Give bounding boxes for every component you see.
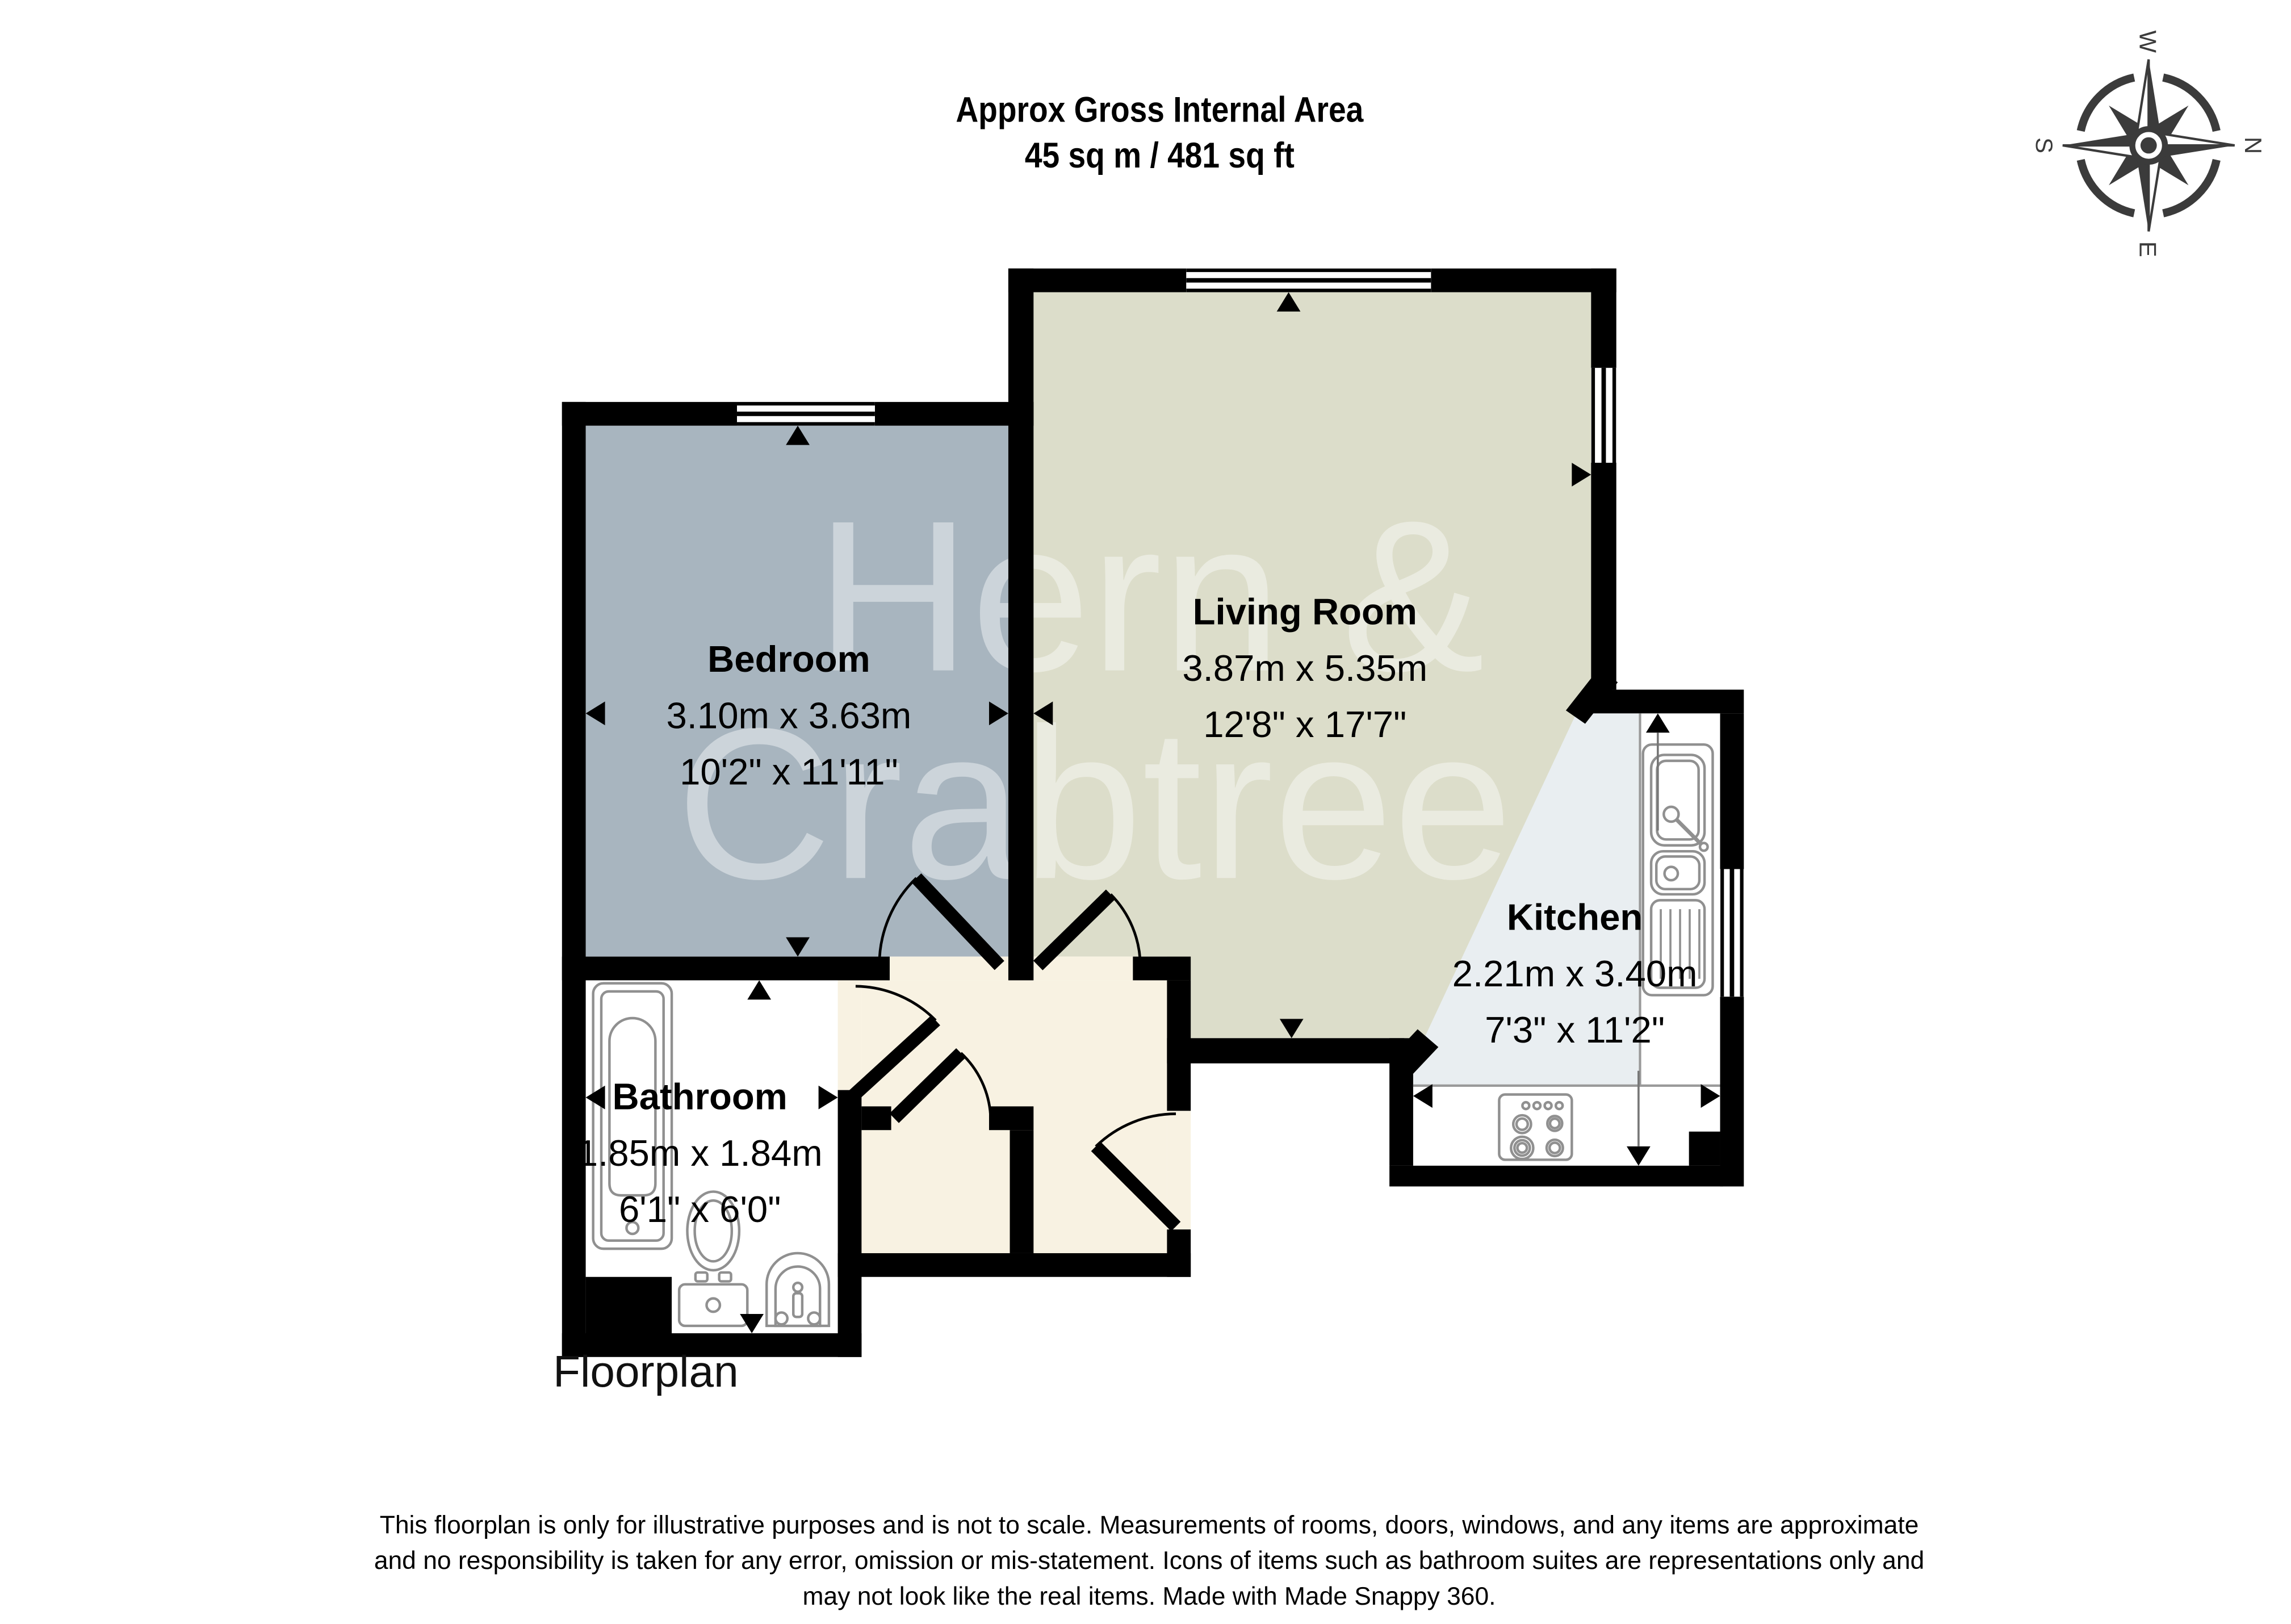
compass-s: S [2031, 137, 2058, 153]
kitchen-imperial: 7'3" x 11'2" [1485, 1009, 1665, 1050]
basin-icon [767, 1253, 829, 1326]
disclaimer-line1: This floorplan is only for illustrative … [380, 1512, 1919, 1539]
room-label-living: Living Room 3.87m x 5.35m 12'8" x 17'7" [1182, 591, 1427, 745]
compass-hub-dot [2141, 137, 2157, 154]
compass-w: W [2135, 31, 2162, 53]
bathroom-imperial: 6'1" x 6'0" [619, 1188, 781, 1230]
compass-icon: N E S W [2031, 31, 2267, 257]
bedroom-imperial: 10'2" x 11'11" [680, 751, 898, 793]
wall-outer-left [562, 402, 586, 1357]
living-name: Living Room [1193, 591, 1417, 633]
floorplan-svg: Approx Gross Internal Area 45 sq m / 481… [0, 0, 2291, 1624]
wall-living-bottom [1167, 1038, 1404, 1063]
wall-bathroom-right [838, 1090, 862, 1357]
door-gap-entrance [1167, 1111, 1191, 1229]
wall-inner-stub-right [989, 1106, 1033, 1130]
wall-hall-bottom [838, 1253, 1191, 1277]
wall-living-right [1591, 269, 1616, 690]
title-line1: Approx Gross Internal Area [956, 90, 1364, 129]
title: Approx Gross Internal Area 45 sq m / 481… [956, 90, 1364, 175]
wall-hall-top [562, 957, 890, 981]
wall-living-top-left [1008, 269, 1186, 292]
bedroom-name: Bedroom [707, 638, 870, 680]
wall-bathroom-step [586, 1277, 672, 1333]
kitchen-metric: 2.21m x 3.40m [1452, 953, 1698, 994]
living-metric: 3.87m x 5.35m [1182, 647, 1427, 689]
bathroom-metric: 1.85m x 1.84m [577, 1132, 823, 1174]
window-living-right [1591, 368, 1616, 463]
caption: Floorplan [553, 1346, 739, 1396]
wall-hall-top-right [1133, 957, 1191, 981]
wall-kitchen-bottom [1389, 1166, 1723, 1187]
wall-living-top-right [1431, 269, 1616, 292]
wall-bedroom-living-shared [1008, 269, 1033, 981]
wall-hall-right-upper [1167, 980, 1191, 1111]
window-living-top [1186, 269, 1431, 292]
compass-n: N [2240, 137, 2267, 154]
door-gap-bath [838, 980, 862, 1090]
wall-inner-vertical [1010, 1130, 1034, 1253]
hob-icon [1499, 1095, 1572, 1160]
wall-kitchen-top [1591, 690, 1744, 714]
wall-kitchen-corner-chunk [1689, 1132, 1720, 1166]
title-line2: 45 sq m / 481 sq ft [1025, 136, 1295, 175]
wall-bedroom-top-left [562, 402, 737, 426]
wall-kitchen-right-lower [1720, 997, 1744, 1186]
kitchen-name: Kitchen [1507, 897, 1643, 938]
compass-e: E [2135, 241, 2162, 257]
bedroom-metric: 3.10m x 3.63m [666, 694, 911, 736]
bathroom-name: Bathroom [613, 1076, 788, 1117]
wall-inner-stub-left [861, 1106, 891, 1130]
disclaimer: This floorplan is only for illustrative … [374, 1512, 1924, 1610]
floorplan-page: Approx Gross Internal Area 45 sq m / 481… [0, 0, 2291, 1624]
wall-kitchen-right-upper [1720, 713, 1744, 869]
window-kitchen-right [1720, 869, 1744, 997]
disclaimer-line2: and no responsibility is taken for any e… [374, 1547, 1924, 1575]
disclaimer-line3: may not look like the real items. Made w… [803, 1583, 1496, 1610]
living-imperial: 12'8" x 17'7" [1203, 704, 1406, 745]
window-bedroom-top [737, 402, 875, 426]
